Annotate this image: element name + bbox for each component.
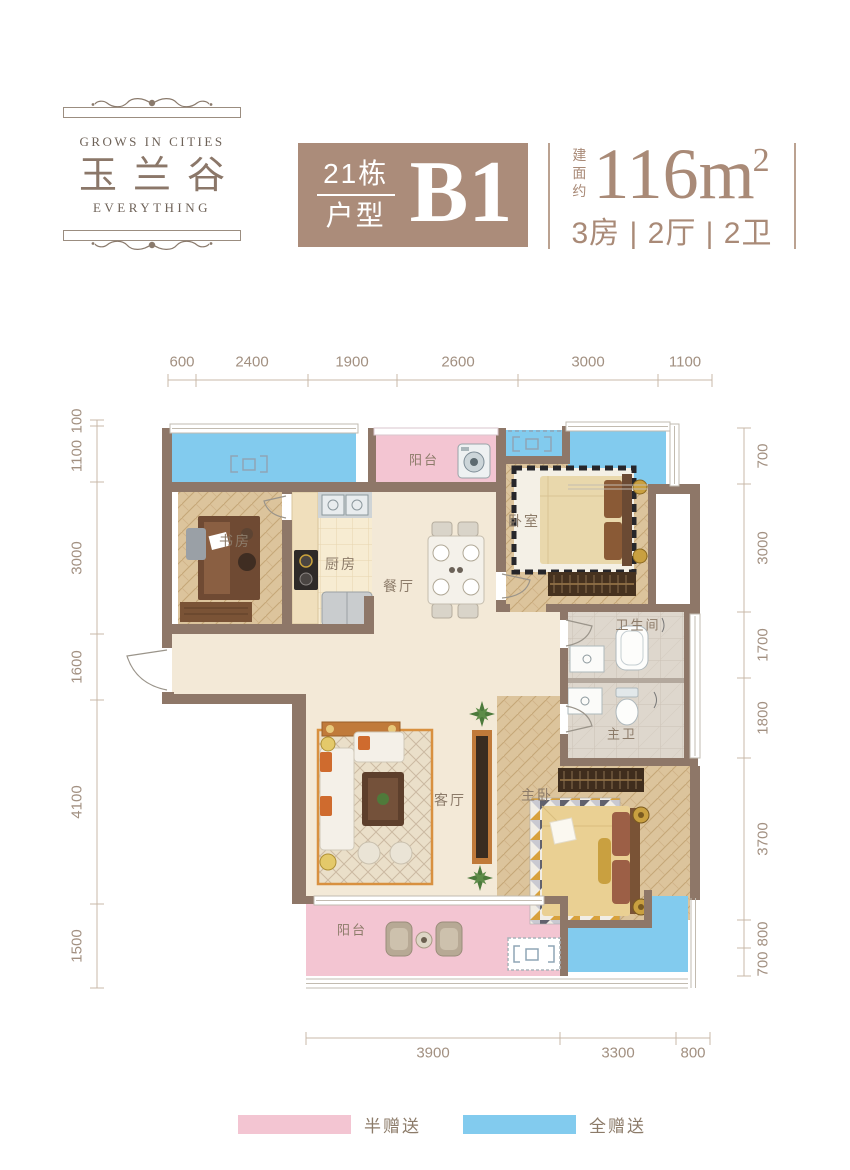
- room-label-study: 书房: [219, 531, 251, 551]
- dim-top-1: 600: [169, 354, 194, 371]
- dim-right-1: 700: [755, 443, 772, 468]
- dim-bottom-1: 3900: [416, 1045, 449, 1062]
- dim-top-2: 2400: [235, 354, 268, 371]
- dim-left-1: 100: [69, 408, 86, 433]
- dim-top-6: 1100: [669, 354, 701, 371]
- dim-right-3: 1700: [755, 628, 772, 661]
- room-label-living: 客厅: [434, 790, 466, 810]
- dim-right-2: 3000: [755, 531, 772, 564]
- dim-left-6: 1500: [69, 929, 86, 962]
- room-label-balcony-top: 阳台: [409, 450, 439, 469]
- dim-right-7: 700: [755, 951, 772, 976]
- legend: 半赠送 全赠送: [238, 1112, 646, 1137]
- balcony-blue-ac-niche: [506, 430, 564, 458]
- dim-top-4: 2600: [441, 354, 474, 371]
- bath-divider-wall: [568, 678, 684, 683]
- dim-bottom-3: 800: [680, 1045, 705, 1062]
- page: GROWS IN CITIES 玉兰谷 EVERYTHING 21栋 户型 B1…: [0, 0, 850, 1170]
- entry-door: [127, 650, 167, 690]
- washing-machine: [458, 444, 490, 478]
- dim-left-4: 1600: [69, 650, 86, 683]
- room-label-master-bath: 主卫: [607, 724, 637, 743]
- room-label-kitchen: 厨房: [325, 554, 357, 574]
- dim-top-5: 3000: [571, 354, 604, 371]
- legend-label-full-gift: 全赠送: [589, 1112, 646, 1137]
- legend-swatch-half-gift: [238, 1115, 351, 1134]
- dim-left-2: 1100: [69, 440, 86, 472]
- legend-swatch-full-gift: [463, 1115, 576, 1134]
- room-label-balcony-bottom: 阳台: [337, 920, 367, 939]
- room-label-bathroom: 卫生间: [615, 615, 660, 634]
- dim-left-3: 3000: [69, 541, 86, 574]
- room-label-master-bedroom: 主卧: [521, 785, 553, 805]
- furniture-dining: [428, 522, 484, 618]
- dim-top-3: 1900: [335, 354, 368, 371]
- dim-right-6: 800: [755, 921, 772, 946]
- floor-plan: [0, 0, 850, 1170]
- dim-bottom-2: 3300: [601, 1045, 634, 1062]
- ac-icon-bottom-right: [508, 938, 560, 970]
- legend-label-half-gift: 半赠送: [364, 1112, 421, 1137]
- room-label-bedroom: 卧室: [508, 511, 540, 531]
- dim-right-4: 1800: [755, 701, 772, 734]
- room-label-dining: 餐厅: [383, 576, 415, 596]
- balcony-blue-top-left: [172, 432, 356, 484]
- dim-right-5: 3700: [755, 822, 772, 855]
- dim-left-5: 4100: [69, 785, 86, 818]
